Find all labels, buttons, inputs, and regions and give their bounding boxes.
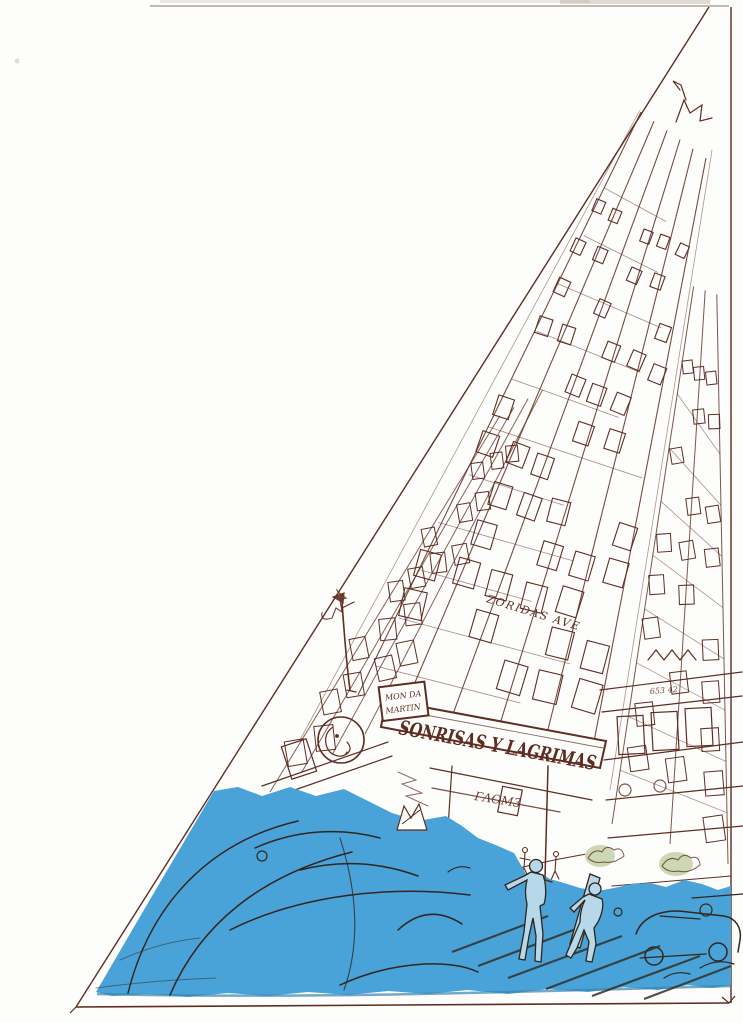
window-sketch [284, 739, 307, 767]
figure-head [589, 883, 601, 895]
window-sketch [571, 678, 603, 714]
floor-line [421, 570, 531, 601]
storefront-line [604, 742, 743, 760]
frame-corner-tick [70, 1007, 76, 1013]
window-sketch [537, 541, 564, 571]
bushes [585, 845, 700, 876]
figure-head [530, 860, 543, 873]
sketch-page: SONRISAS Y LAGRIMAS MON DA MARTIN ZORIDA… [0, 0, 743, 1023]
window-sketch [547, 498, 571, 526]
window-sketch [592, 199, 606, 214]
window-sketch [469, 609, 499, 643]
window-sketch [314, 725, 336, 752]
window-sketch [414, 549, 442, 581]
scan-smudge [160, 0, 590, 3]
window-sketch [565, 374, 586, 397]
window-sketch [496, 660, 528, 696]
hood-pennant-scribble [397, 804, 427, 830]
window-sketch [650, 273, 665, 290]
window-sketch [608, 208, 622, 223]
window-sketch [404, 603, 423, 626]
window-sketch [693, 366, 704, 380]
window-sketch [693, 409, 706, 424]
facade-line [365, 390, 543, 734]
window-sketch [452, 543, 470, 565]
window-sketch [553, 277, 571, 296]
floor-line [438, 522, 573, 560]
window-sketch [708, 414, 720, 429]
window-sketch [343, 672, 364, 698]
lamppost-head [333, 593, 344, 603]
window-sketch [649, 575, 665, 595]
storefront-line [606, 786, 743, 800]
window-sketch [679, 540, 696, 560]
window-sketch [603, 558, 629, 588]
window-sketch [701, 728, 720, 752]
window-sketch [705, 505, 720, 523]
window-sketch [569, 551, 596, 581]
window-sketch [399, 588, 428, 621]
window-sketch [586, 383, 607, 406]
window-sketch [640, 229, 654, 244]
shop-stall [651, 711, 679, 750]
window-sketch [702, 639, 719, 660]
medallion-eye [336, 735, 339, 738]
window-sketch [493, 395, 515, 420]
sketch-canvas: SONRISAS Y LAGRIMAS MON DA MARTIN ZORIDA… [0, 0, 743, 1023]
window-sketch [648, 364, 667, 385]
window-sketch [705, 371, 717, 385]
floor-line [557, 283, 661, 327]
floor-line [537, 331, 641, 372]
window-sketch [531, 453, 555, 480]
frame-corner-tick [722, 996, 735, 1003]
window-sketch [349, 636, 369, 660]
window-sketch [642, 617, 660, 639]
floor-line [512, 379, 619, 418]
facade-line [717, 294, 728, 864]
window-sketch [704, 548, 720, 567]
window-sketch [604, 429, 626, 454]
storefront-line [602, 696, 742, 712]
floor-line [620, 770, 727, 813]
marquee-plate: MON DA MARTIN [379, 682, 429, 721]
pencil-dot [15, 59, 20, 64]
frame-bottom-line [76, 1003, 729, 1007]
window-sketch [610, 392, 631, 415]
window-sketch [665, 756, 687, 782]
medallion-profile [326, 727, 350, 756]
window-sketch [686, 497, 701, 515]
window-sketch [594, 299, 612, 318]
window-sketch [682, 360, 694, 374]
shop-stall [685, 707, 713, 746]
window-sketch [430, 552, 447, 573]
facade-line [405, 121, 654, 706]
facade-line [452, 130, 667, 717]
window-sketch [580, 640, 609, 673]
scribble-bush-sketch [315, 580, 346, 619]
window-sketch [488, 482, 513, 510]
storefront-scribble-text: ΓΛΟM3 [473, 789, 523, 810]
window-sketch [612, 522, 637, 550]
window-sketch [545, 627, 574, 660]
scan-smudge [560, 0, 710, 4]
hatch-scribble [398, 772, 428, 806]
shop-scribble-mark [619, 784, 631, 796]
awning-zigzag [648, 650, 696, 660]
window-sketch [457, 503, 473, 523]
window-sketch [602, 341, 621, 362]
window-sketch [471, 462, 485, 479]
window-sketch [471, 520, 497, 550]
street-sign-text: ZORIDAS AVE [484, 592, 581, 633]
window-sketch [704, 771, 724, 796]
spire-sketch [676, 100, 712, 122]
spire-flag [673, 81, 686, 100]
window-sketch [627, 745, 649, 771]
storefront-line [608, 826, 743, 838]
window-sketch [657, 533, 672, 552]
window-sketch [572, 421, 594, 446]
bush [659, 852, 693, 876]
floor-line [469, 475, 564, 506]
